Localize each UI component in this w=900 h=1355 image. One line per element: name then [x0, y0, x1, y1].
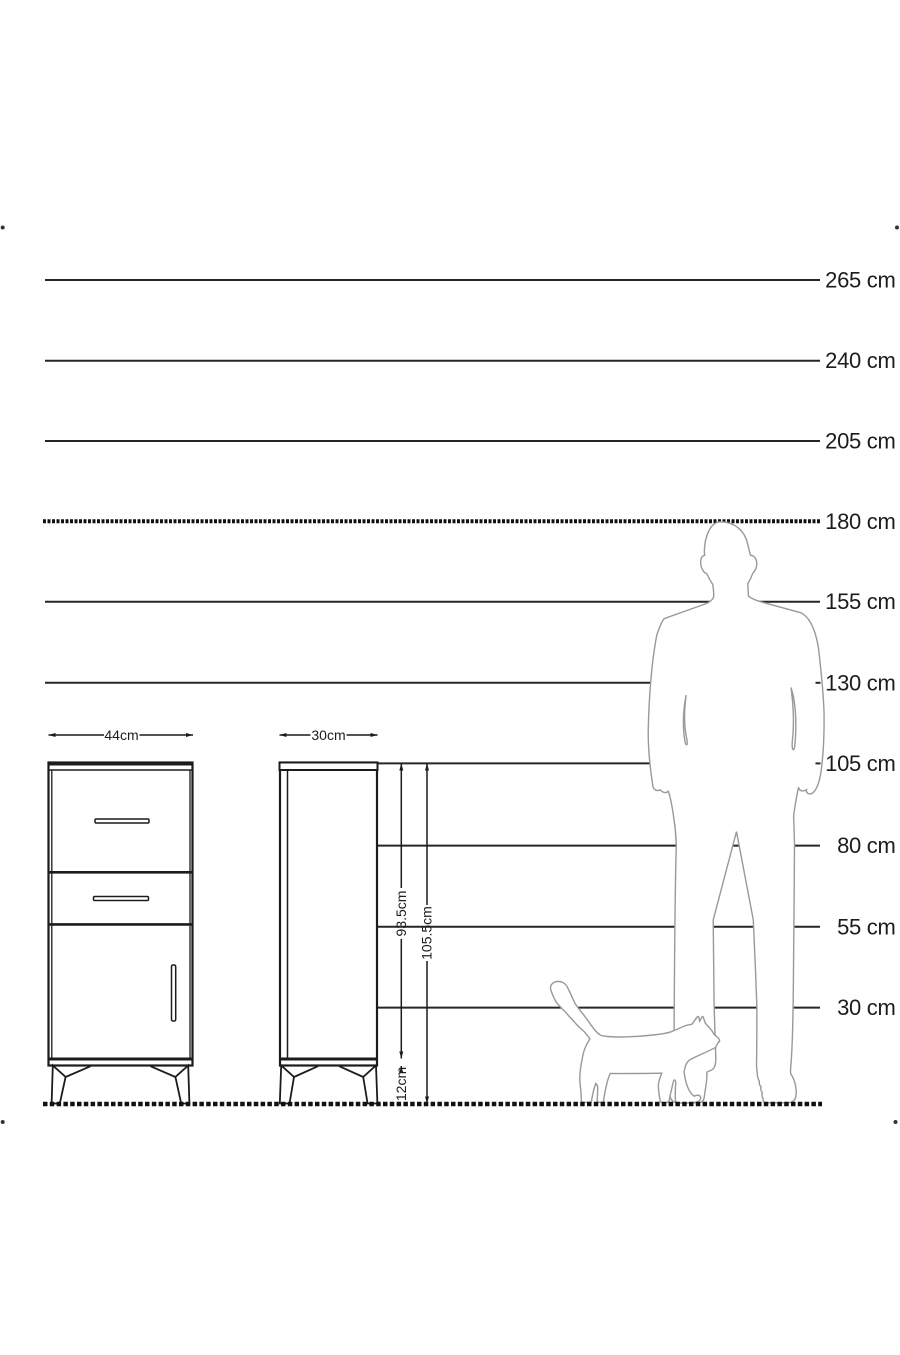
svg-text:93.5cm: 93.5cm [393, 891, 409, 937]
svg-text:130 cm: 130 cm [825, 670, 895, 695]
svg-text:240 cm: 240 cm [825, 348, 895, 373]
svg-text:105.5cm: 105.5cm [419, 906, 435, 960]
svg-text:180 cm: 180 cm [825, 509, 895, 534]
svg-text:44cm: 44cm [104, 727, 138, 743]
svg-text:30cm: 30cm [311, 727, 345, 743]
svg-text:55 cm: 55 cm [837, 914, 895, 939]
svg-text:265 cm: 265 cm [825, 268, 895, 293]
svg-text:30 cm: 30 cm [837, 995, 895, 1020]
svg-text:205 cm: 205 cm [825, 429, 895, 454]
svg-text:80 cm: 80 cm [837, 833, 895, 858]
svg-text:155 cm: 155 cm [825, 589, 895, 614]
svg-text:105 cm: 105 cm [825, 751, 895, 776]
svg-text:12cm: 12cm [393, 1067, 409, 1101]
